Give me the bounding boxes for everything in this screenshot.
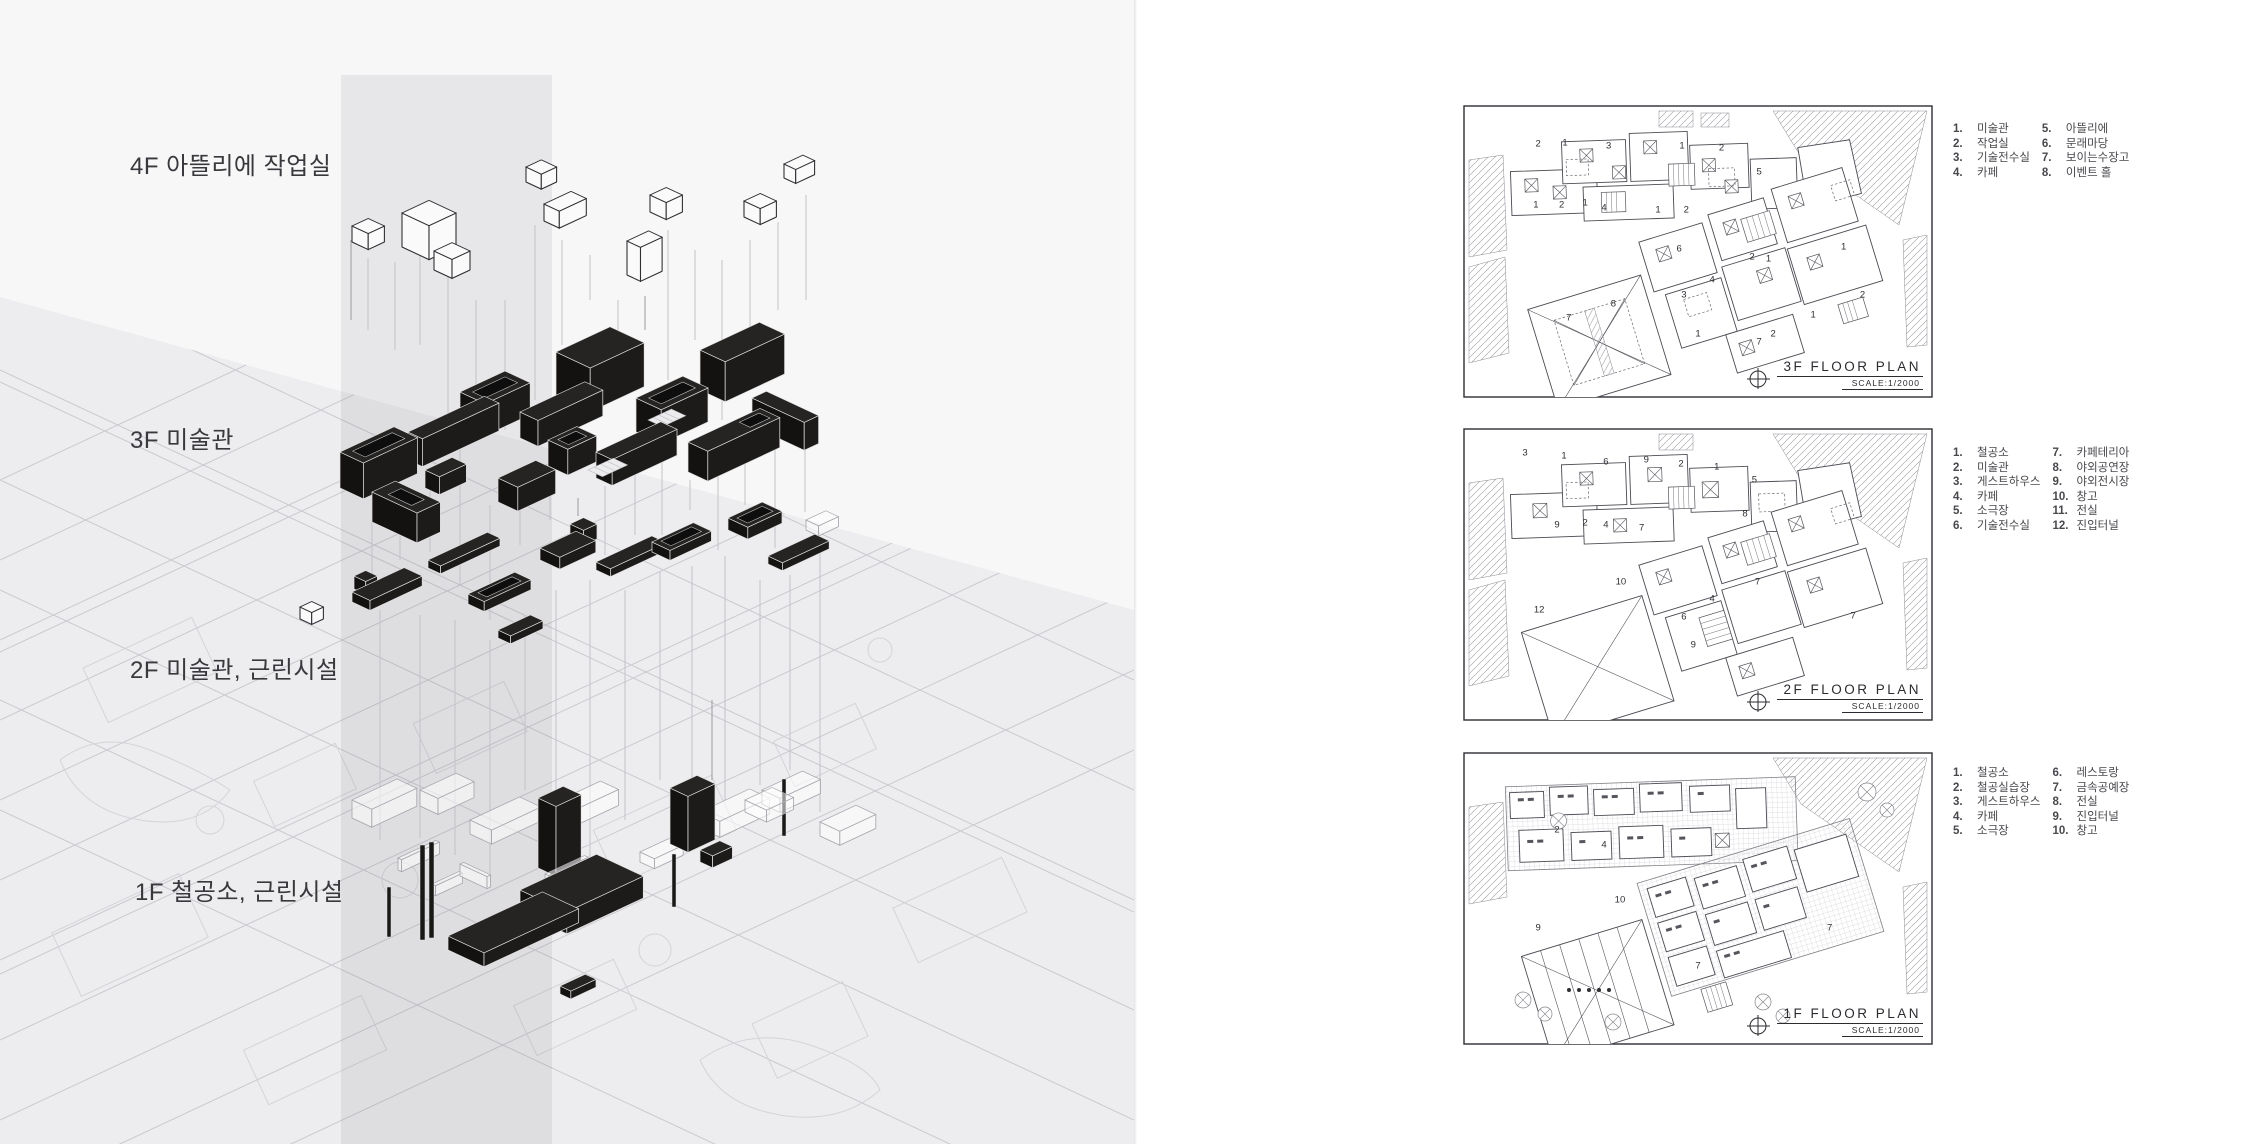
room-number: 1 — [1766, 254, 1771, 265]
floor-plan-1f: 2491077 1F FLOOR PLAN SCALE:1/2000 — [1463, 752, 1933, 1045]
legend-item-number: 7. — [2052, 446, 2076, 461]
legend-item-label: 전실 — [2076, 795, 2097, 810]
legend-item-number: 11. — [2052, 504, 2076, 519]
room-number: 2 — [1554, 824, 1559, 835]
legend-column: 7.카페테리아8.야외공연장9.야외전시장10.창고11.전실12.진입터널 — [2052, 446, 2129, 534]
room-number: 1 — [1655, 205, 1660, 216]
legend-item: 2.미술관 — [1953, 461, 2040, 476]
legend-item-label: 소극장 — [1977, 504, 2009, 519]
legend-item-number: 3. — [1953, 475, 1977, 490]
legend-item-label: 야외전시장 — [2076, 475, 2129, 490]
datum-icon — [1745, 364, 1771, 390]
legend-item-label: 카페 — [1977, 490, 1998, 505]
room-number: 2 — [1678, 459, 1683, 470]
legend-item-number: 7. — [2052, 781, 2076, 796]
legend-item-number: 2. — [1953, 461, 1977, 476]
legend-item: 9.진입터널 — [2052, 810, 2129, 825]
legend-item-number: 8. — [2052, 795, 2076, 810]
legend-item-number: 1. — [1953, 766, 1977, 781]
legend-item-label: 이벤트 홀 — [2066, 166, 2112, 181]
legend-item-number: 9. — [2052, 475, 2076, 490]
legend-item: 3.기술전수실 — [1953, 151, 2030, 166]
legend-item: 12.진입터널 — [2052, 519, 2129, 534]
legend-item-number: 4. — [1953, 490, 1977, 505]
plan-title-2f: 2F FLOOR PLAN SCALE:1/2000 — [1745, 682, 1923, 713]
room-number: 1 — [1583, 198, 1588, 209]
room-number: 4 — [1603, 519, 1608, 530]
legend-item-number: 2. — [1953, 781, 1977, 796]
room-number: 7 — [1850, 611, 1855, 622]
floor-label-3f: 3F 미술관 — [130, 420, 234, 455]
legend-item-number: 8. — [2052, 461, 2076, 476]
legend-item-number: 6. — [2052, 766, 2076, 781]
room-number: 7 — [1566, 313, 1571, 324]
legend-item-label: 게스트하우스 — [1977, 795, 2040, 810]
legend-item-label: 진입터널 — [2076, 519, 2118, 534]
legend-item-label: 소극장 — [1977, 824, 2009, 839]
legend-item-label: 작업실 — [1977, 137, 2009, 152]
room-number: 6 — [1677, 243, 1682, 254]
legend-item-label: 금속공예장 — [2076, 781, 2129, 796]
legend-item: 10.창고 — [2052, 824, 2129, 839]
legend-item-label: 철공소 — [1977, 446, 2009, 461]
legend-item: 11.전실 — [2052, 504, 2129, 519]
room-number: 5 — [1756, 167, 1761, 178]
legend-item-label: 진입터널 — [2076, 810, 2118, 825]
legend-item-number: 5. — [1953, 824, 1977, 839]
legend-item-label: 철공실습장 — [1977, 781, 2030, 796]
room-number: 2 — [1583, 517, 1588, 528]
room-number: 3 — [1522, 447, 1527, 458]
datum-icon — [1745, 687, 1771, 713]
room-number: 4 — [1709, 274, 1714, 285]
legend-item: 6.문래마당 — [2042, 137, 2129, 152]
room-number: 2 — [1719, 143, 1724, 154]
room-number: 1 — [1562, 138, 1567, 149]
room-number: 9 — [1644, 455, 1649, 466]
legend-item: 6.기술전수실 — [1953, 519, 2040, 534]
legend-item: 8.이벤트 홀 — [2042, 166, 2129, 181]
legend-item: 3.게스트하우스 — [1953, 475, 2040, 490]
legend-item-number: 10. — [2052, 824, 2076, 839]
legend-item: 5.소극장 — [1953, 504, 2040, 519]
legend-item-label: 카페 — [1977, 166, 1998, 181]
room-number: 2 — [1860, 290, 1865, 301]
legend-item-number: 4. — [1953, 166, 1977, 181]
legend-item-number: 12. — [2052, 519, 2076, 534]
legend-item-number: 5. — [2042, 122, 2066, 137]
plan-scale: SCALE:1/2000 — [1842, 700, 1923, 713]
legend-item: 9.야외전시장 — [2052, 475, 2129, 490]
room-number: 7 — [1827, 922, 1832, 933]
room-number: 1 — [1533, 199, 1538, 210]
legend-item: 8.야외공연장 — [2052, 461, 2129, 476]
legend-item-number: 7. — [2042, 151, 2066, 166]
room-labels-3f: 2131251214126211438721127 — [1463, 105, 1933, 398]
legend-item: 3.게스트하우스 — [1953, 795, 2040, 810]
legend-item: 1.철공소 — [1953, 446, 2040, 461]
legend-item: 5.아뜰리에 — [2042, 122, 2129, 137]
legend-item-number: 1. — [1953, 446, 1977, 461]
plan-name: 2F FLOOR PLAN — [1777, 682, 1923, 700]
room-number: 1 — [1695, 328, 1700, 339]
room-number: 10 — [1615, 895, 1626, 906]
legend-column: 6.레스토랑7.금속공예장8.전실9.진입터널10.창고 — [2052, 766, 2129, 839]
legend-1f: 1.철공소2.철공실습장3.게스트하우스4.카페5.소극장 6.레스토랑7.금속… — [1953, 766, 2129, 839]
floor-label-4f: 4F 아뜰리에 작업실 — [130, 146, 331, 181]
legend-item-label: 보이는수장고 — [2066, 151, 2129, 166]
legend-item-label: 레스토랑 — [2076, 766, 2118, 781]
room-number: 2 — [1749, 252, 1754, 263]
legend-column: 1.철공소2.철공실습장3.게스트하우스4.카페5.소극장 — [1953, 766, 2040, 839]
legend-item-label: 카페테리아 — [2076, 446, 2129, 461]
legend-item-number: 4. — [1953, 810, 1977, 825]
legend-item-number: 6. — [2042, 137, 2066, 152]
floor-label-1f: 1F 철공소, 근린시설 — [135, 872, 344, 907]
plan-scale: SCALE:1/2000 — [1842, 1024, 1923, 1037]
room-number: 2 — [1536, 138, 1541, 149]
plan-scale: SCALE:1/2000 — [1842, 377, 1923, 390]
legend-item-label: 미술관 — [1977, 122, 2009, 137]
legend-item: 4.카페 — [1953, 490, 2040, 505]
datum-icon — [1745, 1011, 1771, 1037]
legend-item: 7.카페테리아 — [2052, 446, 2129, 461]
legend-2f: 1.철공소2.미술관3.게스트하우스4.카페5.소극장6.기술전수실 7.카페테… — [1953, 446, 2129, 534]
legend-column: 1.미술관2.작업실3.기술전수실4.카페 — [1953, 122, 2030, 180]
room-number: 9 — [1554, 519, 1559, 530]
room-number: 1 — [1810, 310, 1815, 321]
plan-name: 1F FLOOR PLAN — [1777, 1006, 1923, 1024]
room-number: 2 — [1559, 199, 1564, 210]
room-number: 1 — [1679, 141, 1684, 152]
legend-item: 7.보이는수장고 — [2042, 151, 2129, 166]
legend-item-label: 게스트하우스 — [1977, 475, 2040, 490]
room-number: 10 — [1616, 577, 1627, 588]
room-number: 12 — [1534, 604, 1545, 615]
legend-item-label: 미술관 — [1977, 461, 2009, 476]
legend-item-number: 8. — [2042, 166, 2066, 181]
legend-item-number: 10. — [2052, 490, 2076, 505]
legend-item: 4.카페 — [1953, 166, 2030, 181]
legend-item-label: 기술전수실 — [1977, 151, 2030, 166]
room-number: 6 — [1681, 611, 1686, 622]
legend-column: 1.철공소2.미술관3.게스트하우스4.카페5.소극장6.기술전수실 — [1953, 446, 2040, 534]
legend-item-label: 전실 — [2076, 504, 2097, 519]
floor-label-2f: 2F 미술관, 근린시설 — [130, 650, 339, 685]
room-number: 1 — [1841, 241, 1846, 252]
room-number: 1 — [1561, 450, 1566, 461]
legend-item: 2.작업실 — [1953, 137, 2030, 152]
room-number: 9 — [1536, 922, 1541, 933]
room-number: 3 — [1606, 141, 1611, 152]
room-number: 7 — [1639, 522, 1644, 533]
legend-item-label: 기술전수실 — [1977, 519, 2030, 534]
room-number: 6 — [1603, 456, 1608, 467]
room-number: 8 — [1742, 509, 1747, 520]
legend-item-number: 3. — [1953, 151, 1977, 166]
legend-item-label: 야외공연장 — [2076, 461, 2129, 476]
legend-item: 5.소극장 — [1953, 824, 2040, 839]
legend-item: 2.철공실습장 — [1953, 781, 2040, 796]
plan-title-3f: 3F FLOOR PLAN SCALE:1/2000 — [1745, 359, 1923, 390]
legend-item-label: 문래마당 — [2066, 137, 2108, 152]
floor-plan-3f: 2131251214126211438721127 3F FLOOR PLAN … — [1463, 105, 1933, 398]
legend-item: 1.철공소 — [1953, 766, 2040, 781]
legend-item-number: 2. — [1953, 137, 1977, 152]
room-number: 4 — [1601, 840, 1606, 851]
plan-name: 3F FLOOR PLAN — [1777, 359, 1923, 377]
legend-item-label: 창고 — [2076, 490, 2097, 505]
legend-item: 4.카페 — [1953, 810, 2040, 825]
axon-panel: 4F 아뜰리에 작업실 3F 미술관 2F 미술관, 근린시설 1F 철공소, … — [0, 0, 1134, 1144]
room-number: 5 — [1752, 474, 1757, 485]
legend-item-number: 3. — [1953, 795, 1977, 810]
legend-item-label: 아뜰리에 — [2066, 122, 2108, 137]
room-number: 8 — [1611, 299, 1616, 310]
room-number: 7 — [1695, 960, 1700, 971]
legend-item-label: 카페 — [1977, 810, 1998, 825]
legend-item-label: 철공소 — [1977, 766, 2009, 781]
legend-item-number: 1. — [1953, 122, 1977, 137]
floor-plan-2f: 316921589247121074697 2F FLOOR PLAN SCAL… — [1463, 428, 1933, 721]
legend-item: 8.전실 — [2052, 795, 2129, 810]
legend-column: 5.아뜰리에6.문래마당7.보이는수장고8.이벤트 홀 — [2042, 122, 2129, 180]
legend-item: 10.창고 — [2052, 490, 2129, 505]
plan-title-1f: 1F FLOOR PLAN SCALE:1/2000 — [1745, 1006, 1923, 1037]
legend-item: 6.레스토랑 — [2052, 766, 2129, 781]
room-number: 3 — [1681, 290, 1686, 301]
legend-item: 1.미술관 — [1953, 122, 2030, 137]
room-number: 7 — [1755, 577, 1760, 588]
page-gutter — [1134, 0, 1137, 1144]
room-number: 2 — [1771, 328, 1776, 339]
room-labels-1f: 2491077 — [1463, 752, 1933, 1045]
legend-3f: 1.미술관2.작업실3.기술전수실4.카페 5.아뜰리에6.문래마당7.보이는수… — [1953, 122, 2129, 180]
legend-item-label: 창고 — [2076, 824, 2097, 839]
room-number: 9 — [1691, 639, 1696, 650]
room-labels-2f: 316921589247121074697 — [1463, 428, 1933, 721]
room-number: 2 — [1684, 205, 1689, 216]
room-number: 4 — [1601, 202, 1606, 213]
legend-item-number: 6. — [1953, 519, 1977, 534]
legend-item-number: 5. — [1953, 504, 1977, 519]
legend-item: 7.금속공예장 — [2052, 781, 2129, 796]
room-number: 1 — [1714, 461, 1719, 472]
room-number: 7 — [1756, 337, 1761, 348]
legend-item-number: 9. — [2052, 810, 2076, 825]
room-number: 4 — [1709, 594, 1714, 605]
